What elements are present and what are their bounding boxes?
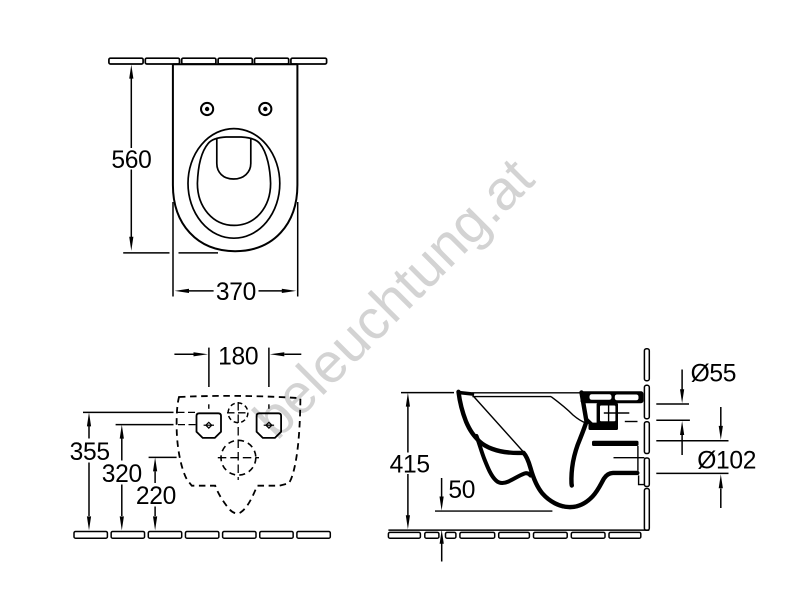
svg-text:415: 415 xyxy=(390,451,430,478)
svg-text:180: 180 xyxy=(218,344,258,371)
svg-text:Ø102: Ø102 xyxy=(697,448,756,475)
svg-text:Ø55: Ø55 xyxy=(691,361,737,388)
svg-text:370: 370 xyxy=(216,279,256,306)
svg-text:50: 50 xyxy=(448,477,475,504)
svg-text:220: 220 xyxy=(136,483,176,510)
svg-text:560: 560 xyxy=(111,147,151,174)
